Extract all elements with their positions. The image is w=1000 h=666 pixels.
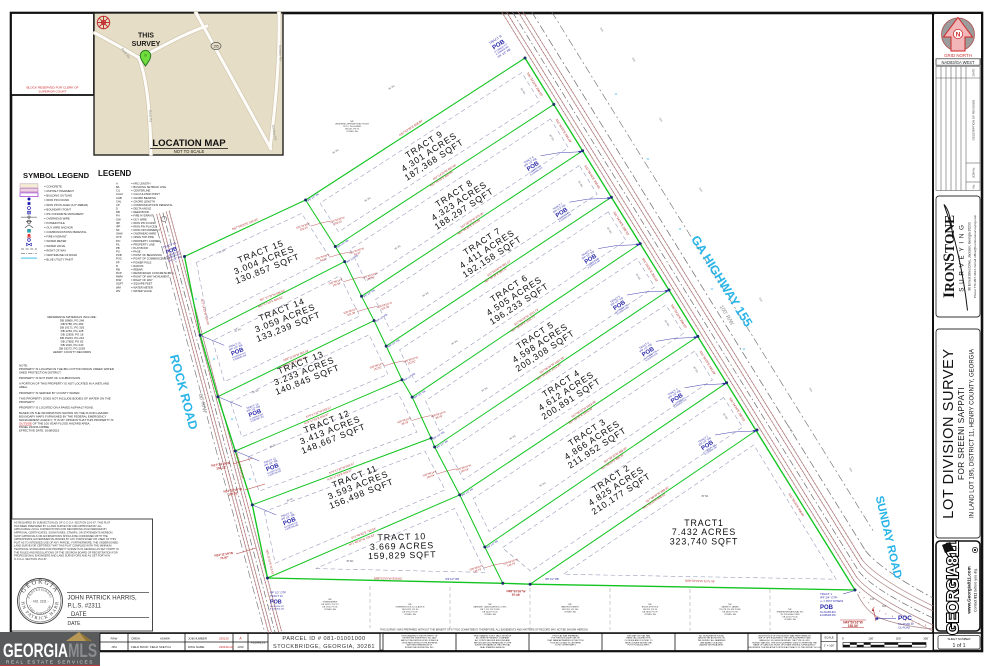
svg-text:= RIGHT OF WAY: = RIGHT OF WAY: [44, 248, 66, 252]
svg-text:= OVERHEAD WIRE: = OVERHEAD WIRE: [131, 232, 156, 236]
svg-text:= RIGHT OF WAY: = RIGHT OF WAY: [131, 278, 153, 282]
svg-text:RB: RB: [116, 267, 120, 271]
svg-text:SCALE: SCALE: [824, 636, 834, 640]
svg-text:SEAL STAMPED HEREON.: SEAL STAMPED HEREON.: [480, 646, 505, 649]
svg-text:NOT TO SCALE: NOT TO SCALE: [174, 149, 205, 154]
svg-text:= ASPHALT PAVEMENT: = ASPHALT PAVEMENT: [44, 189, 74, 193]
svg-text:RCP: RCP: [116, 271, 122, 275]
svg-text:APPLICABLE LOCAL JURISDICTIO: APPLICABLE LOCAL JURISDICTIONS FOR RECOR…: [14, 527, 107, 531]
svg-text:ZONED: RA: ZONED: RA: [564, 611, 576, 614]
svg-text:= RADIUS: = RADIUS: [131, 264, 144, 268]
svg-text:ZONED: RA: ZONED: RA: [644, 613, 656, 616]
svg-text:= POWER POLE: = POWER POLE: [131, 260, 152, 264]
svg-text:IPP 1/2" RB: IPP 1/2" RB: [445, 577, 459, 581]
svg-text:JAXW: JAXW: [237, 646, 244, 649]
svg-text:= BLUE UTILITY PAINT: = BLUE UTILITY PAINT: [44, 257, 73, 261]
svg-text:= CHORD LENGTH: = CHORD LENGTH: [131, 199, 155, 203]
svg-text:PROPERTY IS NOT PART OF A SUBD: PROPERTY IS NOT PART OF A SUBDIVISION.: [19, 376, 81, 380]
svg-text:ZONED: RA: ZONED: RA: [346, 130, 358, 133]
svg-text:= CHORD BEARING: = CHORD BEARING: [131, 196, 156, 200]
svg-text:= RIGHT OF WAY MONUMENT: = RIGHT OF WAY MONUMENT: [131, 275, 170, 279]
svg-text:C/L ROAD: C/L ROAD: [898, 626, 910, 630]
svg-text:HENRY COUNTY RECORDS: HENRY COUNTY RECORDS: [53, 350, 91, 354]
svg-text:ZONED: RA: ZONED: RA: [324, 608, 336, 611]
svg-text:= WATER METER: = WATER METER: [44, 239, 66, 243]
svg-text:= GUY WIRE ANCHOR: = GUY WIRE ANCHOR: [44, 226, 73, 230]
svg-text:O.C.G.A. SECTION 15-6-67.: O.C.G.A. SECTION 15-6-67.: [14, 557, 48, 561]
svg-text:= IPF CONCRETE MONUMENT: = IPF CONCRETE MONUMENT: [44, 212, 84, 216]
svg-text:35′ B/L: 35′ B/L: [701, 495, 709, 498]
svg-text:= OVERHEAD WIRE: = OVERHEAD WIRE: [44, 216, 70, 220]
svg-text:= WATER METER: = WATER METER: [131, 285, 153, 289]
svg-text:LEGEND: LEGEND: [98, 169, 132, 178]
svg-text:P/C: P/C: [116, 239, 121, 243]
svg-text:= PLAT BOOK: = PLAT BOOK: [131, 246, 149, 250]
svg-text:= NOW OR FORMERLY: = NOW OR FORMERLY: [131, 228, 160, 232]
svg-text:Contact 811 before you dig.: Contact 811 before you dig.: [974, 568, 978, 612]
svg-text:1" = 100': 1" = 100': [824, 644, 835, 648]
svg-text:= IRON PIN PLACED (1/2" REBAR): = IRON PIN PLACED (1/2" REBAR): [44, 203, 88, 207]
svg-text:97.08′: 97.08′: [512, 593, 521, 597]
svg-text:= ARC LENGTH: = ARC LENGTH: [131, 182, 151, 186]
svg-text:= BUILDING OUTLINE: = BUILDING OUTLINE: [44, 194, 72, 198]
svg-text:PB: PB: [116, 246, 120, 250]
svg-text:230130: 230130: [219, 636, 229, 640]
svg-text:SHED PROTECTION DISTRICT.: SHED PROTECTION DISTRICT.: [19, 370, 62, 374]
svg-text:WM: WM: [116, 285, 122, 289]
svg-text:= FIRE HYDRANT: = FIRE HYDRANT: [44, 235, 67, 239]
svg-text:FOOT IN 338,404 FEET.: FOOT IN 338,404 FEET.: [628, 645, 650, 647]
svg-text:PG: PG: [116, 250, 120, 254]
svg-text:= WATER VALVE: = WATER VALVE: [44, 244, 65, 248]
svg-text:LOCATION MAP: LOCATION MAP: [152, 138, 226, 149]
svg-text:1 of 1: 1 of 1: [953, 643, 966, 649]
svg-text:AREA.: AREA.: [19, 385, 28, 389]
svg-text:CHL: CHL: [116, 199, 122, 203]
svg-text:IPF 3/4" OTP-: IPF 3/4" OTP-: [820, 596, 838, 600]
svg-text:= POINT OF BEGINNING: = POINT OF BEGINNING: [131, 253, 162, 257]
svg-text:= WATER VALVE: = WATER VALVE: [131, 289, 152, 293]
svg-text:IPP: IPP: [116, 225, 121, 229]
svg-text:IPF: IPF: [116, 221, 121, 225]
svg-text:= BUILDING SETBACK LINE: = BUILDING SETBACK LINE: [131, 185, 166, 189]
svg-text:THIS: THIS: [138, 33, 154, 40]
svg-text:= SQUARE FEET: = SQUARE FEET: [131, 282, 153, 286]
svg-text:CREW:: CREW:: [131, 636, 141, 640]
svg-text:R/W: R/W: [116, 278, 122, 282]
svg-text:= PAGE: = PAGE: [131, 250, 141, 254]
svg-text:N:1314456.824: N:1314456.824: [820, 612, 836, 614]
svg-text:OTP: OTP: [116, 235, 122, 239]
svg-text:LAND SURVEYOR CERTIFIES THA: LAND SURVEYOR CERTIFIES THAT THIS PLAT C…: [14, 544, 111, 548]
svg-text:NF: NF: [116, 228, 120, 232]
svg-text:THIS SURVEY WAS PREPARED WITHO: THIS SURVEY WAS PREPARED WITHOUT THE BEN…: [380, 629, 589, 632]
svg-text:- NO. 2311 -: - NO. 2311 -: [31, 600, 48, 604]
svg-text:DATE: DATE: [71, 612, 87, 618]
svg-text:PARCEL ID # 081-01001000: PARCEL ID # 081-01001000: [282, 636, 365, 642]
svg-text:SURVEY: SURVEY: [132, 41, 161, 48]
svg-text:P.L.S. #2311: P.L.S. #2311: [68, 604, 102, 610]
svg-text:DATE: DATE: [68, 621, 82, 627]
svg-text:= DEED BOOK: = DEED BOOK: [131, 210, 150, 214]
svg-text:EFFECTIVE DATE: 16/08/2016: EFFECTIVE DATE: 16/08/2016: [19, 428, 60, 432]
svg-text:JPH: JPH: [111, 645, 116, 649]
svg-text:E:2287404.430: E:2287404.430: [270, 609, 285, 611]
svg-text:PP: PP: [116, 260, 120, 264]
svg-text:GEORGIA811: GEORGIA811: [945, 541, 962, 635]
svg-text:300': 300': [923, 637, 929, 641]
svg-text:Phone 770-957-4614 / Email off: Phone 770-957-4614 / Email office@ironst…: [973, 214, 977, 298]
svg-text:= COMMUNICATIONS PEDESTAL: = COMMUNICATIONS PEDESTAL: [131, 203, 173, 207]
svg-text:= CENTERLINE: = CENTERLINE: [131, 189, 151, 193]
svg-text:SURVEYING: SURVEYING: [959, 221, 966, 292]
svg-text:S/W: S/W: [870, 598, 875, 601]
svg-text:A PORTION OF THIS PROPERTY IS: A PORTION OF THIS PROPERTY IS NOT LOCATE…: [19, 382, 109, 386]
svg-text:= COMMUNICATIONS PEDESTAL: = COMMUNICATIONS PEDESTAL: [44, 230, 87, 234]
svg-text:S/W: S/W: [882, 605, 887, 608]
svg-text:200': 200': [896, 637, 902, 641]
svg-text:JOB NUMBER: JOB NUMBER: [188, 636, 207, 640]
svg-text:SHEET NUMBER: SHEET NUMBER: [948, 637, 971, 641]
svg-text:IN LAND LOT 195, DISTRICT 11,: IN LAND LOT 195, DISTRICT 11, HENRY COUN…: [970, 349, 976, 518]
svg-text:NAD83/GA WEST: NAD83/GA WEST: [942, 60, 975, 65]
svg-text:No.: No.: [972, 184, 976, 189]
svg-text:RAW: RAW: [111, 636, 118, 640]
svg-text:ZONED: RA: ZONED: RA: [404, 613, 416, 616]
svg-text:WV: WV: [116, 289, 121, 293]
svg-text:OHW: OHW: [116, 232, 123, 236]
svg-text:POC: POC: [898, 615, 912, 622]
svg-text:= CONCRETE: = CONCRETE: [44, 185, 62, 189]
svg-text:ZONED: RA: ZONED: RA: [724, 613, 736, 616]
svg-text:PROPERTY.: PROPERTY.: [19, 400, 35, 404]
svg-text:ADDRESS: ADDRESS: [251, 641, 266, 645]
svg-text:N88°53′59″W 1175.56′: N88°53′59″W 1175.56′: [685, 579, 715, 584]
svg-text:POB: POB: [116, 253, 122, 257]
svg-text:= IRON PIN PLACED: = IRON PIN PLACED: [131, 225, 157, 229]
svg-text:D: D: [116, 207, 118, 211]
svg-text:(NAD83) GEORGIA WEST.: (NAD83) GEORGIA WEST.: [699, 644, 724, 647]
svg-text:POC: POC: [116, 257, 122, 261]
svg-text:= REBAR: = REBAR: [131, 267, 143, 271]
svg-text:= PROPERTY LINE: = PROPERTY LINE: [131, 242, 155, 246]
svg-text:www.Georgia811.com: www.Georgia811.com: [967, 566, 972, 614]
svg-text:= DELTA ANGLE: = DELTA ANGLE: [131, 207, 151, 211]
svg-text:IPP 1/2" RB: IPP 1/2" RB: [545, 577, 559, 581]
svg-text:TRACT 10: TRACT 10: [270, 594, 283, 598]
svg-text:C/L: C/L: [116, 189, 121, 193]
svg-text:AS/MW: AS/MW: [160, 636, 170, 640]
svg-text:A: A: [116, 182, 118, 186]
svg-text:= OPEN TOP PIPE: = OPEN TOP PIPE: [131, 235, 154, 239]
svg-text:Sunday Rd: Sunday Rd: [278, 45, 283, 61]
svg-text:CHB: CHB: [116, 196, 122, 200]
svg-text:JOB No.: JOB No.: [972, 167, 976, 179]
svg-text:IPF 1/2" OTP: IPF 1/2" OTP: [270, 591, 286, 595]
svg-text:ZONED: RA: ZONED: RA: [484, 613, 496, 616]
svg-text:POB: POB: [270, 600, 282, 606]
svg-text:ZONED: RA: ZONED: RA: [784, 618, 796, 621]
svg-text:RWM: RWM: [116, 275, 123, 279]
svg-text:PROPERTY IS LOCATED ON A PAVED: PROPERTY IS LOCATED ON A PAVED ASPHALT R…: [19, 406, 94, 410]
svg-text:35′ B/L: 35′ B/L: [346, 560, 354, 563]
svg-text:= BOUNDARY POINT: = BOUNDARY POINT: [44, 207, 71, 211]
svg-text:155: 155: [213, 44, 219, 48]
svg-text:LOT DIVISION SURVEY: LOT DIVISION SURVEY: [941, 348, 957, 518]
svg-text:= IRON PIN FOUND: = IRON PIN FOUND: [44, 198, 69, 202]
svg-text:96 Ernest Biles Drive, Jackson: 96 Ernest Biles Drive, Jackson, Georgia …: [968, 222, 972, 291]
svg-text:E:2286483.338: E:2286483.338: [820, 615, 836, 617]
svg-text:230130-LD: 230130-LD: [219, 645, 233, 649]
svg-text:STOCKBRIDGE, GEORGIA, 30281: STOCKBRIDGE, GEORGIA, 30281: [273, 644, 375, 650]
svg-text:= POWER POLE: = POWER POLE: [44, 221, 65, 225]
svg-text:CALC: CALC: [116, 192, 123, 196]
svg-text:+/- 1′-POST WITNESS: +/- 1′-POST WITNESS: [820, 601, 844, 603]
svg-text:DATE: DATE: [972, 69, 976, 77]
svg-text:= PROPERTY CORNER: = PROPERTY CORNER: [131, 239, 160, 243]
svg-text:Rock Rd: Rock Rd: [148, 110, 153, 123]
svg-text:PROPERTY IS SERVED BY COUNTY W: PROPERTY IS SERVED BY COUNTY WATER.: [19, 391, 80, 395]
svg-text:RECEIVERS. THE RELATIVE POSITI: RECEIVERS. THE RELATIVE POSITION ACCURAC…: [749, 646, 822, 649]
svg-text:159,829 SQFT: 159,829 SQFT: [368, 549, 437, 561]
svg-text:CP: CP: [116, 203, 120, 207]
svg-text:= GUY WIRE: = GUY WIRE: [131, 217, 147, 221]
svg-text:N: N: [956, 32, 961, 39]
svg-text:IRONSTONE: IRONSTONE: [941, 215, 958, 298]
svg-text:DESCRIPTION OF REVISION: DESCRIPTION OF REVISION: [972, 100, 976, 141]
svg-text:= REINFORCED CONCRETE PIPE: = REINFORCED CONCRETE PIPE: [131, 271, 174, 275]
svg-text:SQFT: SQFT: [116, 282, 124, 286]
svg-text:FIELD BOOK: FIELD SKETCH: FIELD BOOK: FIELD SKETCH: [131, 645, 171, 649]
svg-text:TO NO OTHER PARTY.: TO NO OTHER PARTY.: [555, 644, 577, 647]
svg-text:JOHN PATRICK HARRIS,: JOHN PATRICK HARRIS,: [68, 596, 137, 602]
svg-text:FH: FH: [116, 214, 120, 218]
svg-text:= CALCULATED POINT: = CALCULATED POINT: [131, 192, 160, 196]
svg-text:323,740 SQFT: 323,740 SQFT: [670, 536, 739, 546]
svg-text:100': 100': [868, 637, 874, 641]
svg-text:DB: DB: [116, 210, 120, 214]
svg-text:B/L: B/L: [116, 185, 121, 189]
svg-text:SYMBOL LEGEND: SYMBOL LEGEND: [23, 171, 90, 180]
svg-text:REAL ESTATE SERVICES: REAL ESTATE SERVICES: [6, 660, 94, 665]
svg-text:R: R: [116, 264, 118, 268]
svg-text:N88°53′59″W 839.82′: N88°53′59″W 839.82′: [374, 576, 403, 581]
svg-text:DWG NAME:: DWG NAME:: [188, 645, 205, 649]
svg-text:= IRON PIN FOUND: = IRON PIN FOUND: [131, 221, 156, 225]
svg-text:= FIRE HYDRANT: = FIRE HYDRANT: [131, 214, 154, 218]
svg-text:GRID NORTH: GRID NORTH: [944, 53, 972, 58]
svg-text:= CENTERLINE OF ROAD: = CENTERLINE OF ROAD: [44, 253, 77, 257]
svg-text:POB: POB: [820, 605, 834, 611]
svg-text:IRONSTONE SURVEYING, INC.: IRONSTONE SURVEYING, INC.: [405, 647, 435, 649]
svg-text:C/L ROAD AT: C/L ROAD AT: [898, 622, 914, 626]
svg-text:SUPERIOR COURT: SUPERIOR COURT: [39, 90, 67, 94]
svg-text:FOR SREENI SAPPATI: FOR SREENI SAPPATI: [957, 387, 966, 480]
svg-text:GW: GW: [116, 217, 121, 221]
svg-text:P/L: P/L: [116, 242, 121, 246]
